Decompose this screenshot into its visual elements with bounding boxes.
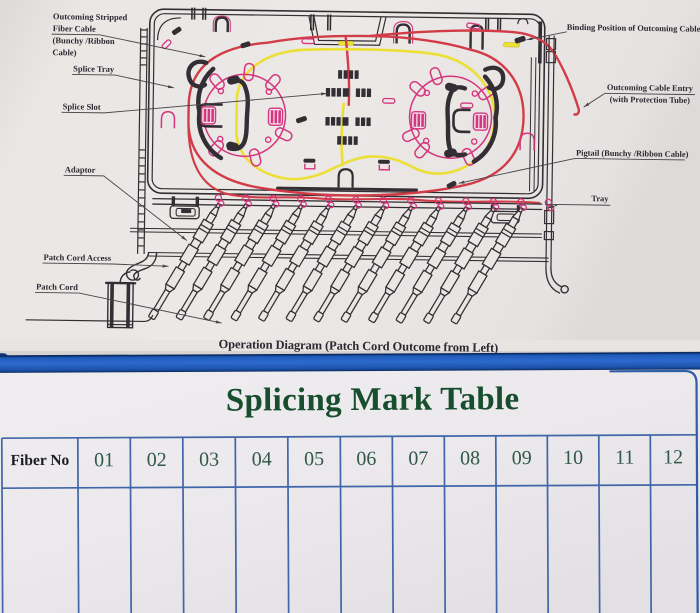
svg-text:08: 08 [460, 447, 480, 469]
svg-text:(Bunchy /Ribbon: (Bunchy /Ribbon [52, 35, 115, 46]
svg-text:11: 11 [615, 447, 634, 469]
svg-text:Outcoming Cable Entry: Outcoming Cable Entry [607, 83, 694, 93]
svg-text:Fiber Cable: Fiber Cable [53, 23, 96, 34]
svg-text:05: 05 [304, 448, 324, 470]
svg-text:01: 01 [94, 449, 114, 471]
svg-text:Patch Cord: Patch Cord [36, 281, 78, 292]
svg-text:Cable): Cable) [52, 47, 76, 57]
svg-text:12: 12 [663, 446, 683, 468]
svg-text:Fiber No: Fiber No [11, 452, 70, 469]
svg-text:Pigtail (Bunchy /Ribbon Cable): Pigtail (Bunchy /Ribbon Cable) [576, 148, 689, 159]
svg-text:04: 04 [252, 448, 272, 470]
svg-text:Splice Tray: Splice Tray [73, 63, 115, 74]
svg-text:10: 10 [563, 447, 583, 469]
svg-text:Tray: Tray [591, 194, 609, 203]
svg-text:07: 07 [408, 448, 428, 470]
svg-text:Binding Position of Outcoming: Binding Position of Outcoming Cable [567, 23, 700, 34]
svg-text:Splice Slot: Splice Slot [63, 101, 101, 112]
svg-text:02: 02 [147, 449, 167, 471]
svg-text:(with Protection Tube): (with Protection Tube) [610, 95, 691, 105]
svg-text:Patch Cord Access: Patch Cord Access [43, 252, 111, 263]
svg-text:Outcoming Stripped: Outcoming Stripped [53, 11, 128, 22]
svg-text:Splicing Mark Table: Splicing Mark Table [226, 381, 520, 418]
svg-text:06: 06 [356, 448, 376, 470]
svg-text:09: 09 [512, 447, 532, 469]
svg-text:03: 03 [199, 449, 219, 471]
svg-text:Adaptor: Adaptor [65, 164, 96, 174]
